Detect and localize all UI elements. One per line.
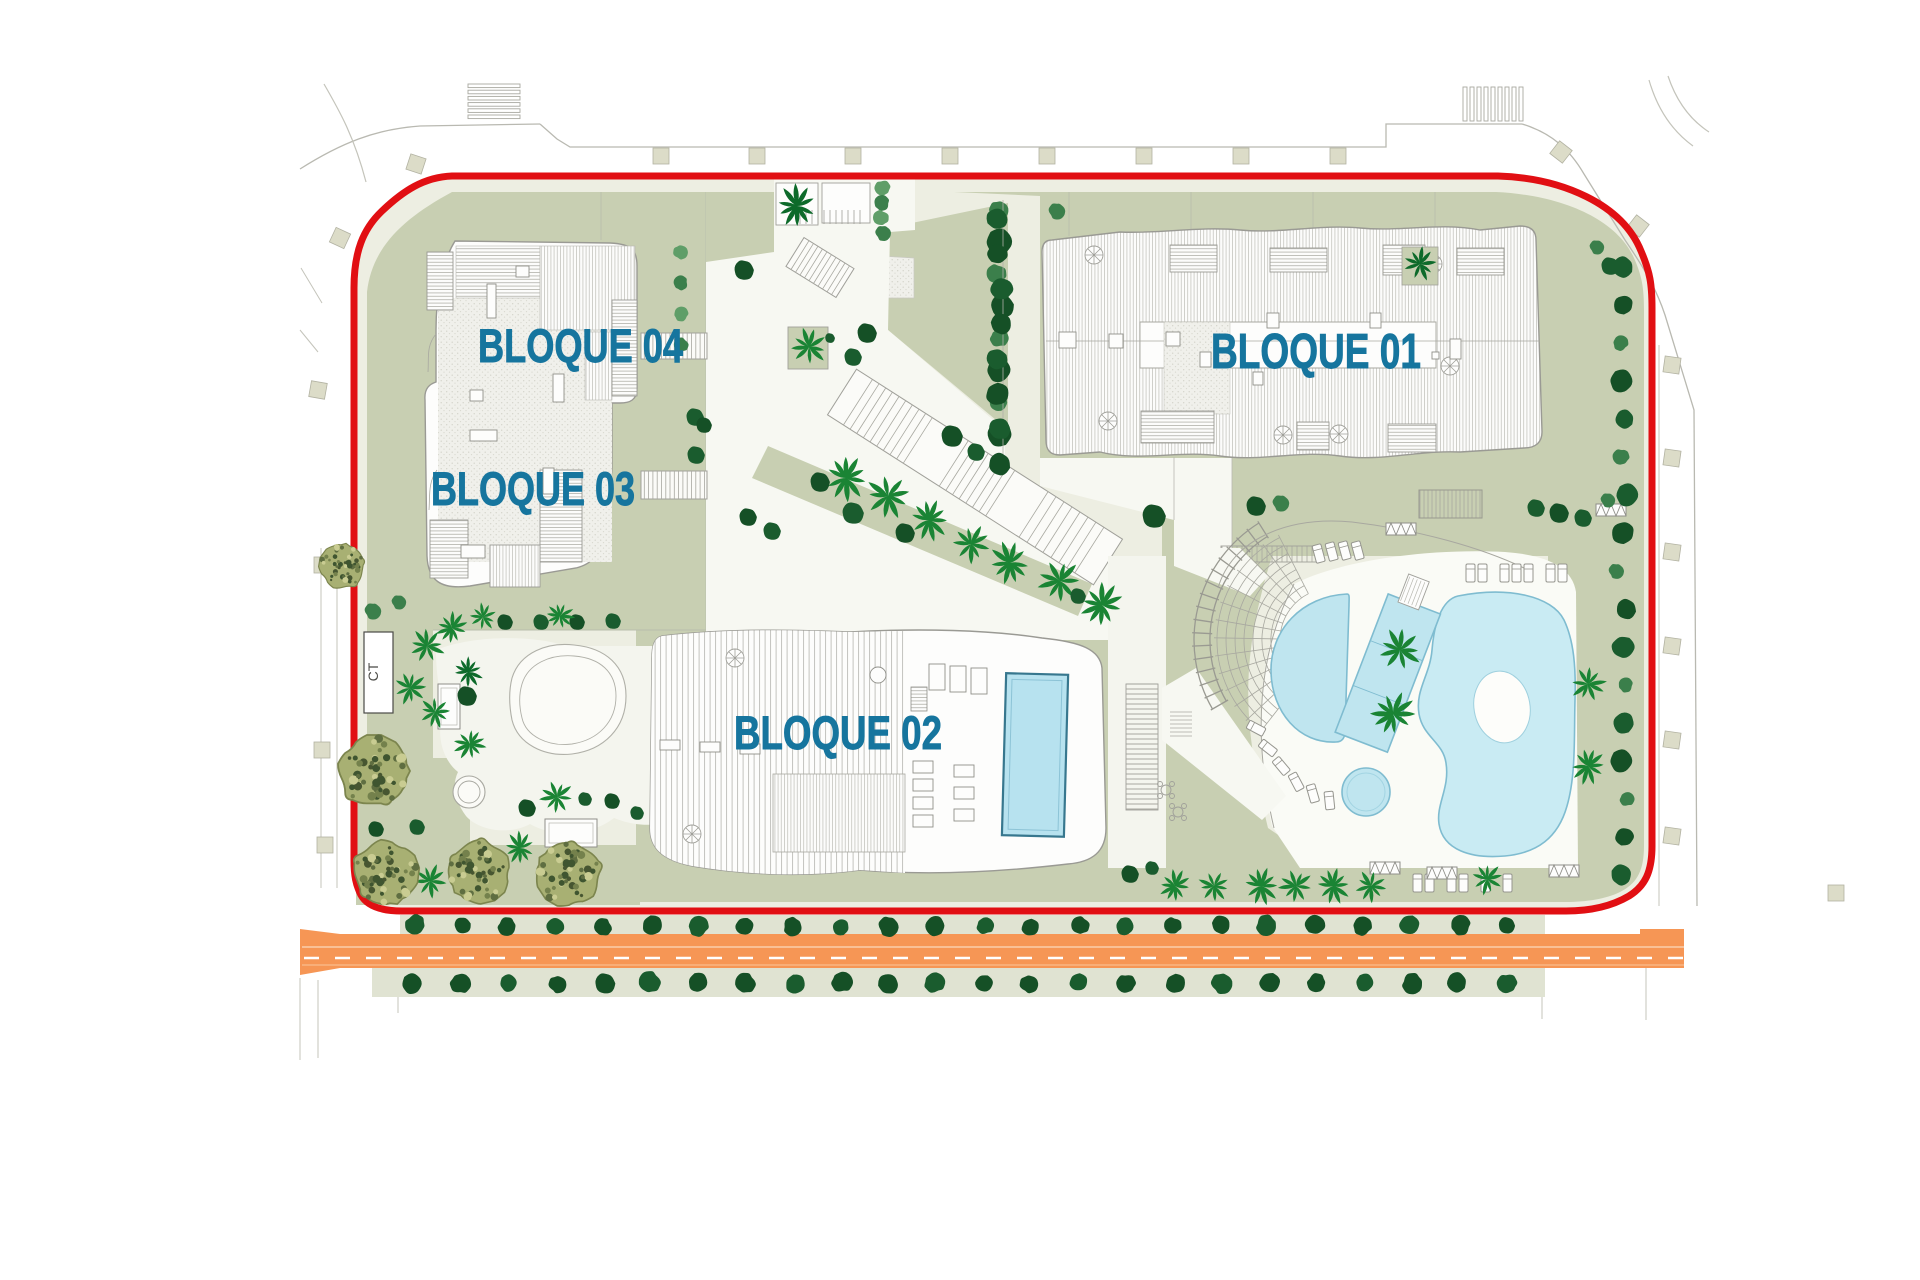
svg-text:BLOQUE 02: BLOQUE 02 [734,706,942,759]
svg-text:BLOQUE 04: BLOQUE 04 [478,319,683,372]
svg-text:CT: CT [365,662,381,681]
svg-text:BLOQUE 01: BLOQUE 01 [1211,325,1421,379]
svg-text:BLOQUE 03: BLOQUE 03 [431,462,635,515]
